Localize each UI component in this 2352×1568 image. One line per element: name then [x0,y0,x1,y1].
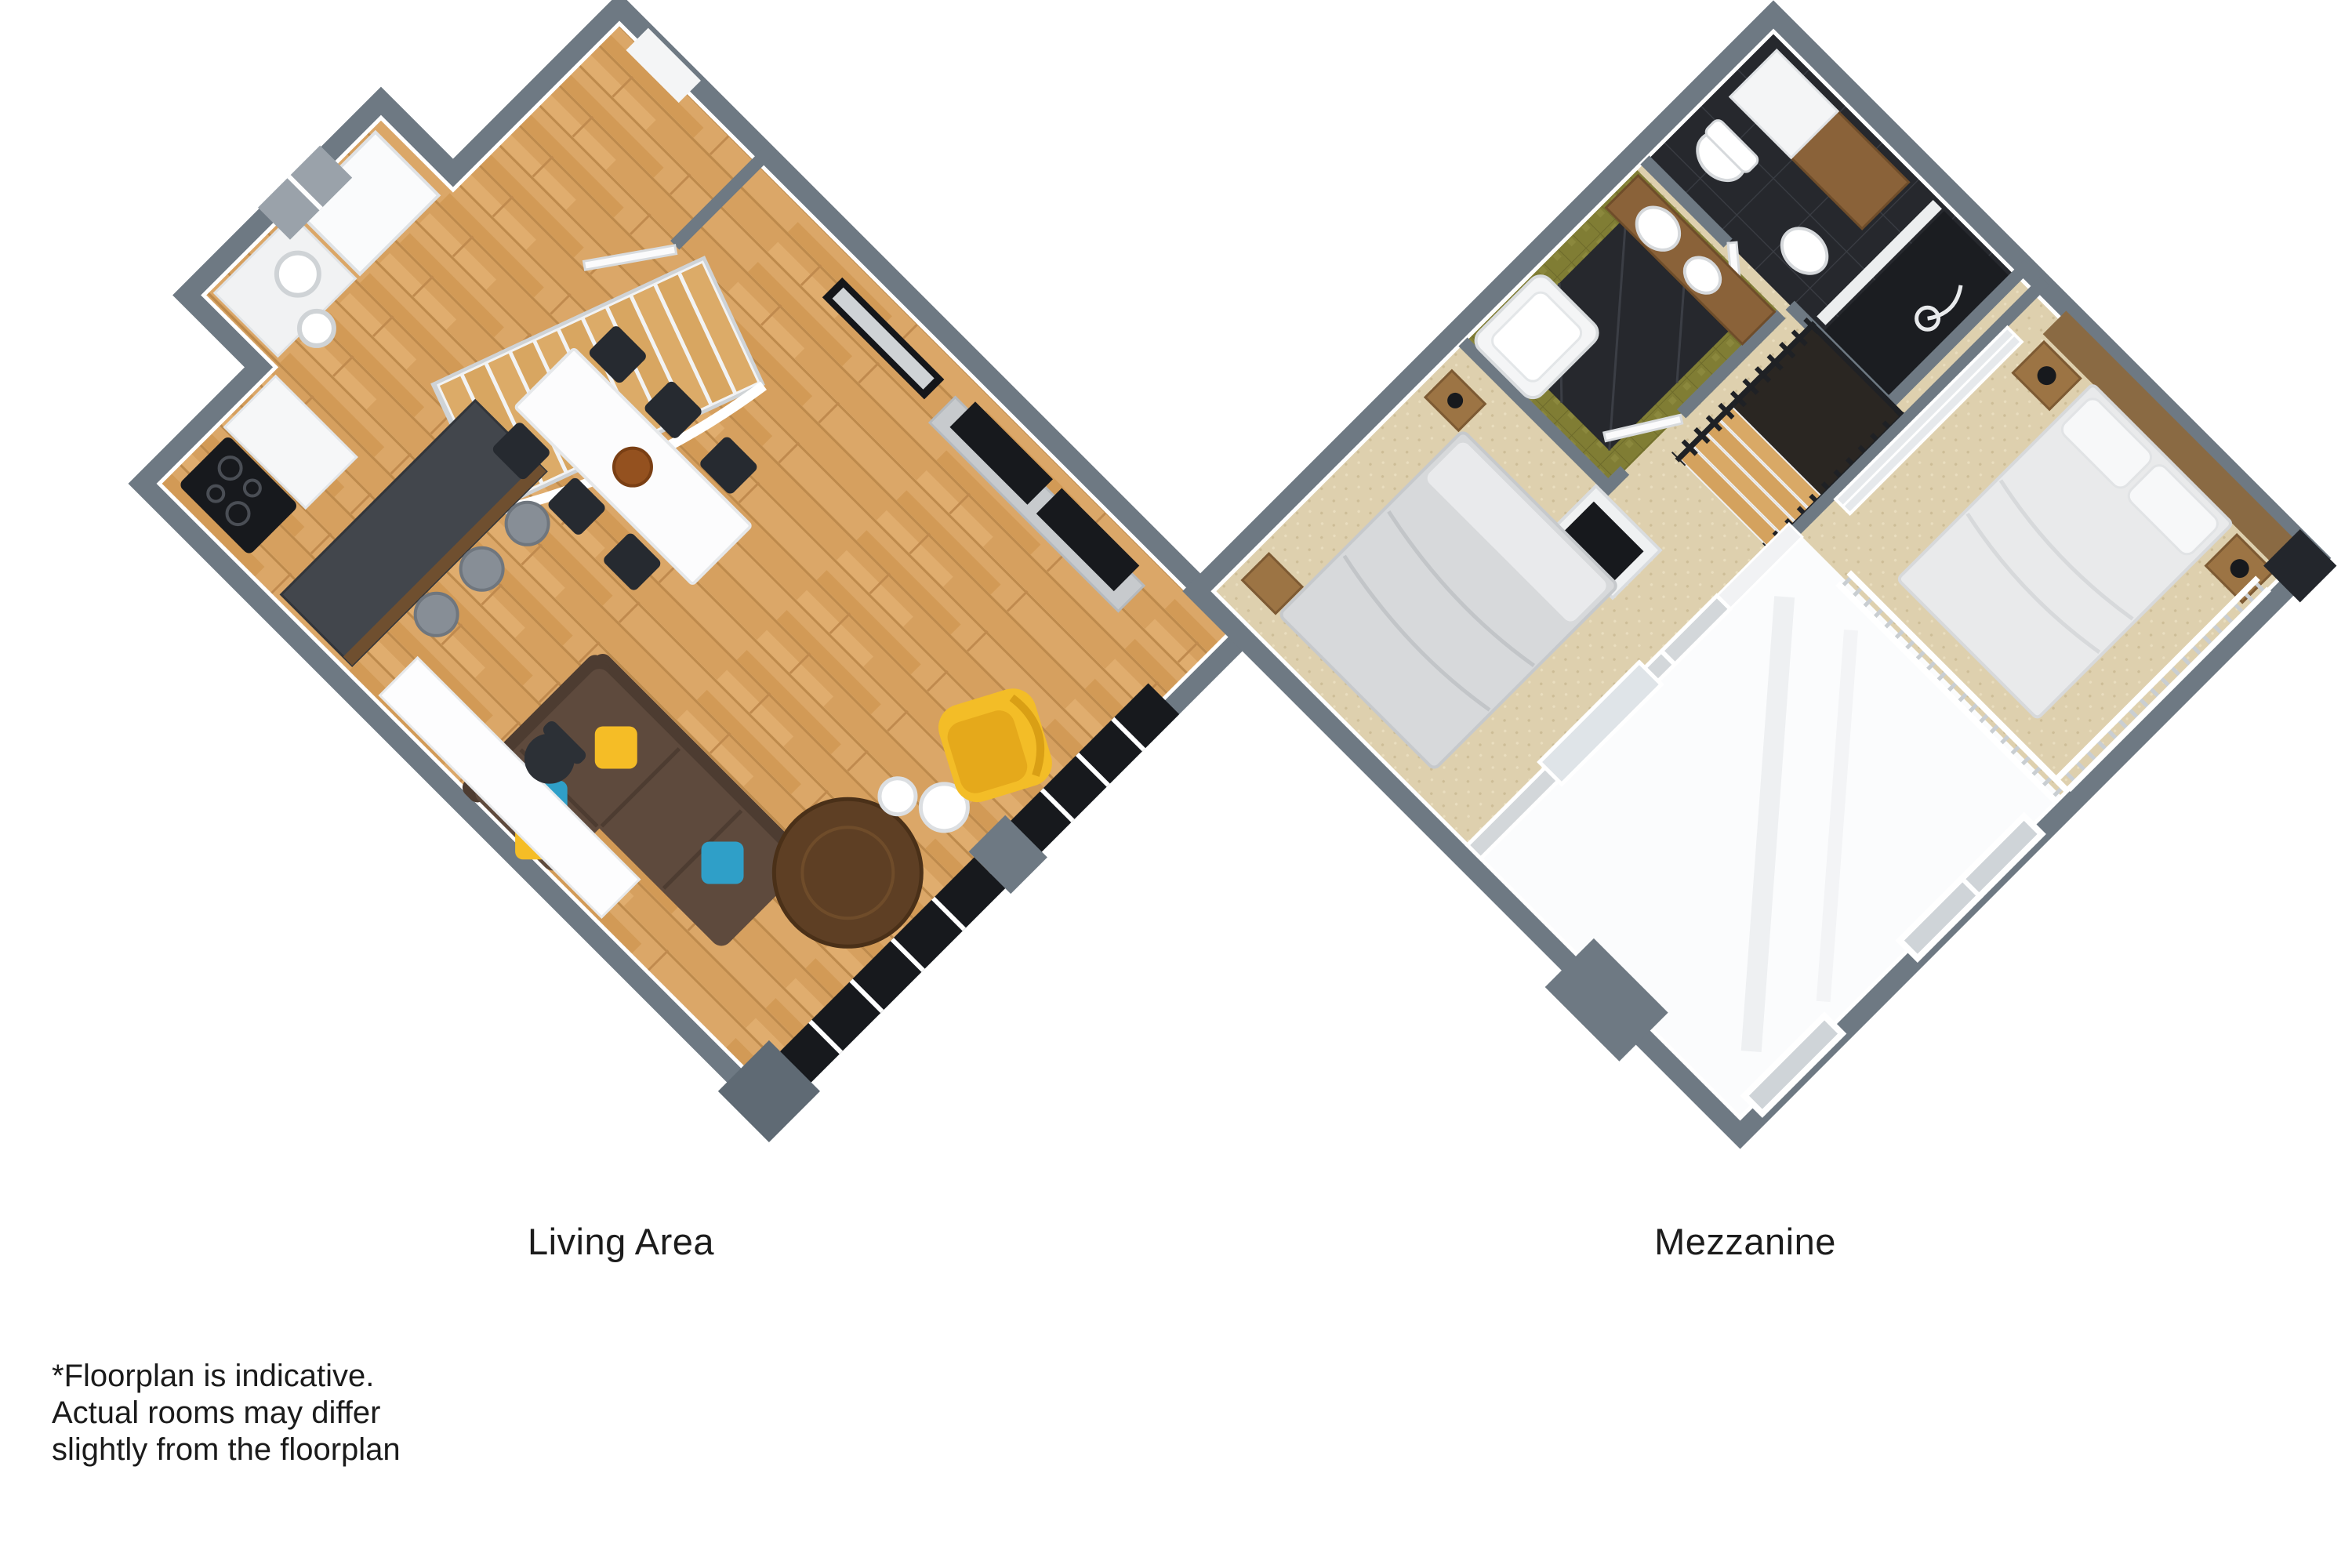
floorplan-living-area [46,0,1267,1142]
disclaimer-note: *Floorplan is indicative. Actual rooms m… [52,1358,401,1468]
disclaimer-line-1: *Floorplan is indicative. [52,1358,401,1395]
disclaimer-line-3: slightly from the floorplan [52,1432,401,1468]
caption-living-area: Living Area [528,1220,714,1263]
cushion-yellow [595,726,637,768]
floorplan-page [0,0,2352,1568]
caption-mezzanine: Mezzanine [1654,1220,1836,1263]
floorplans-canvas [0,0,2352,1568]
disclaimer-line-2: Actual rooms may differ [52,1395,401,1432]
floorplan-mezzanine [1181,17,2337,1173]
cushion-blue [702,842,744,884]
